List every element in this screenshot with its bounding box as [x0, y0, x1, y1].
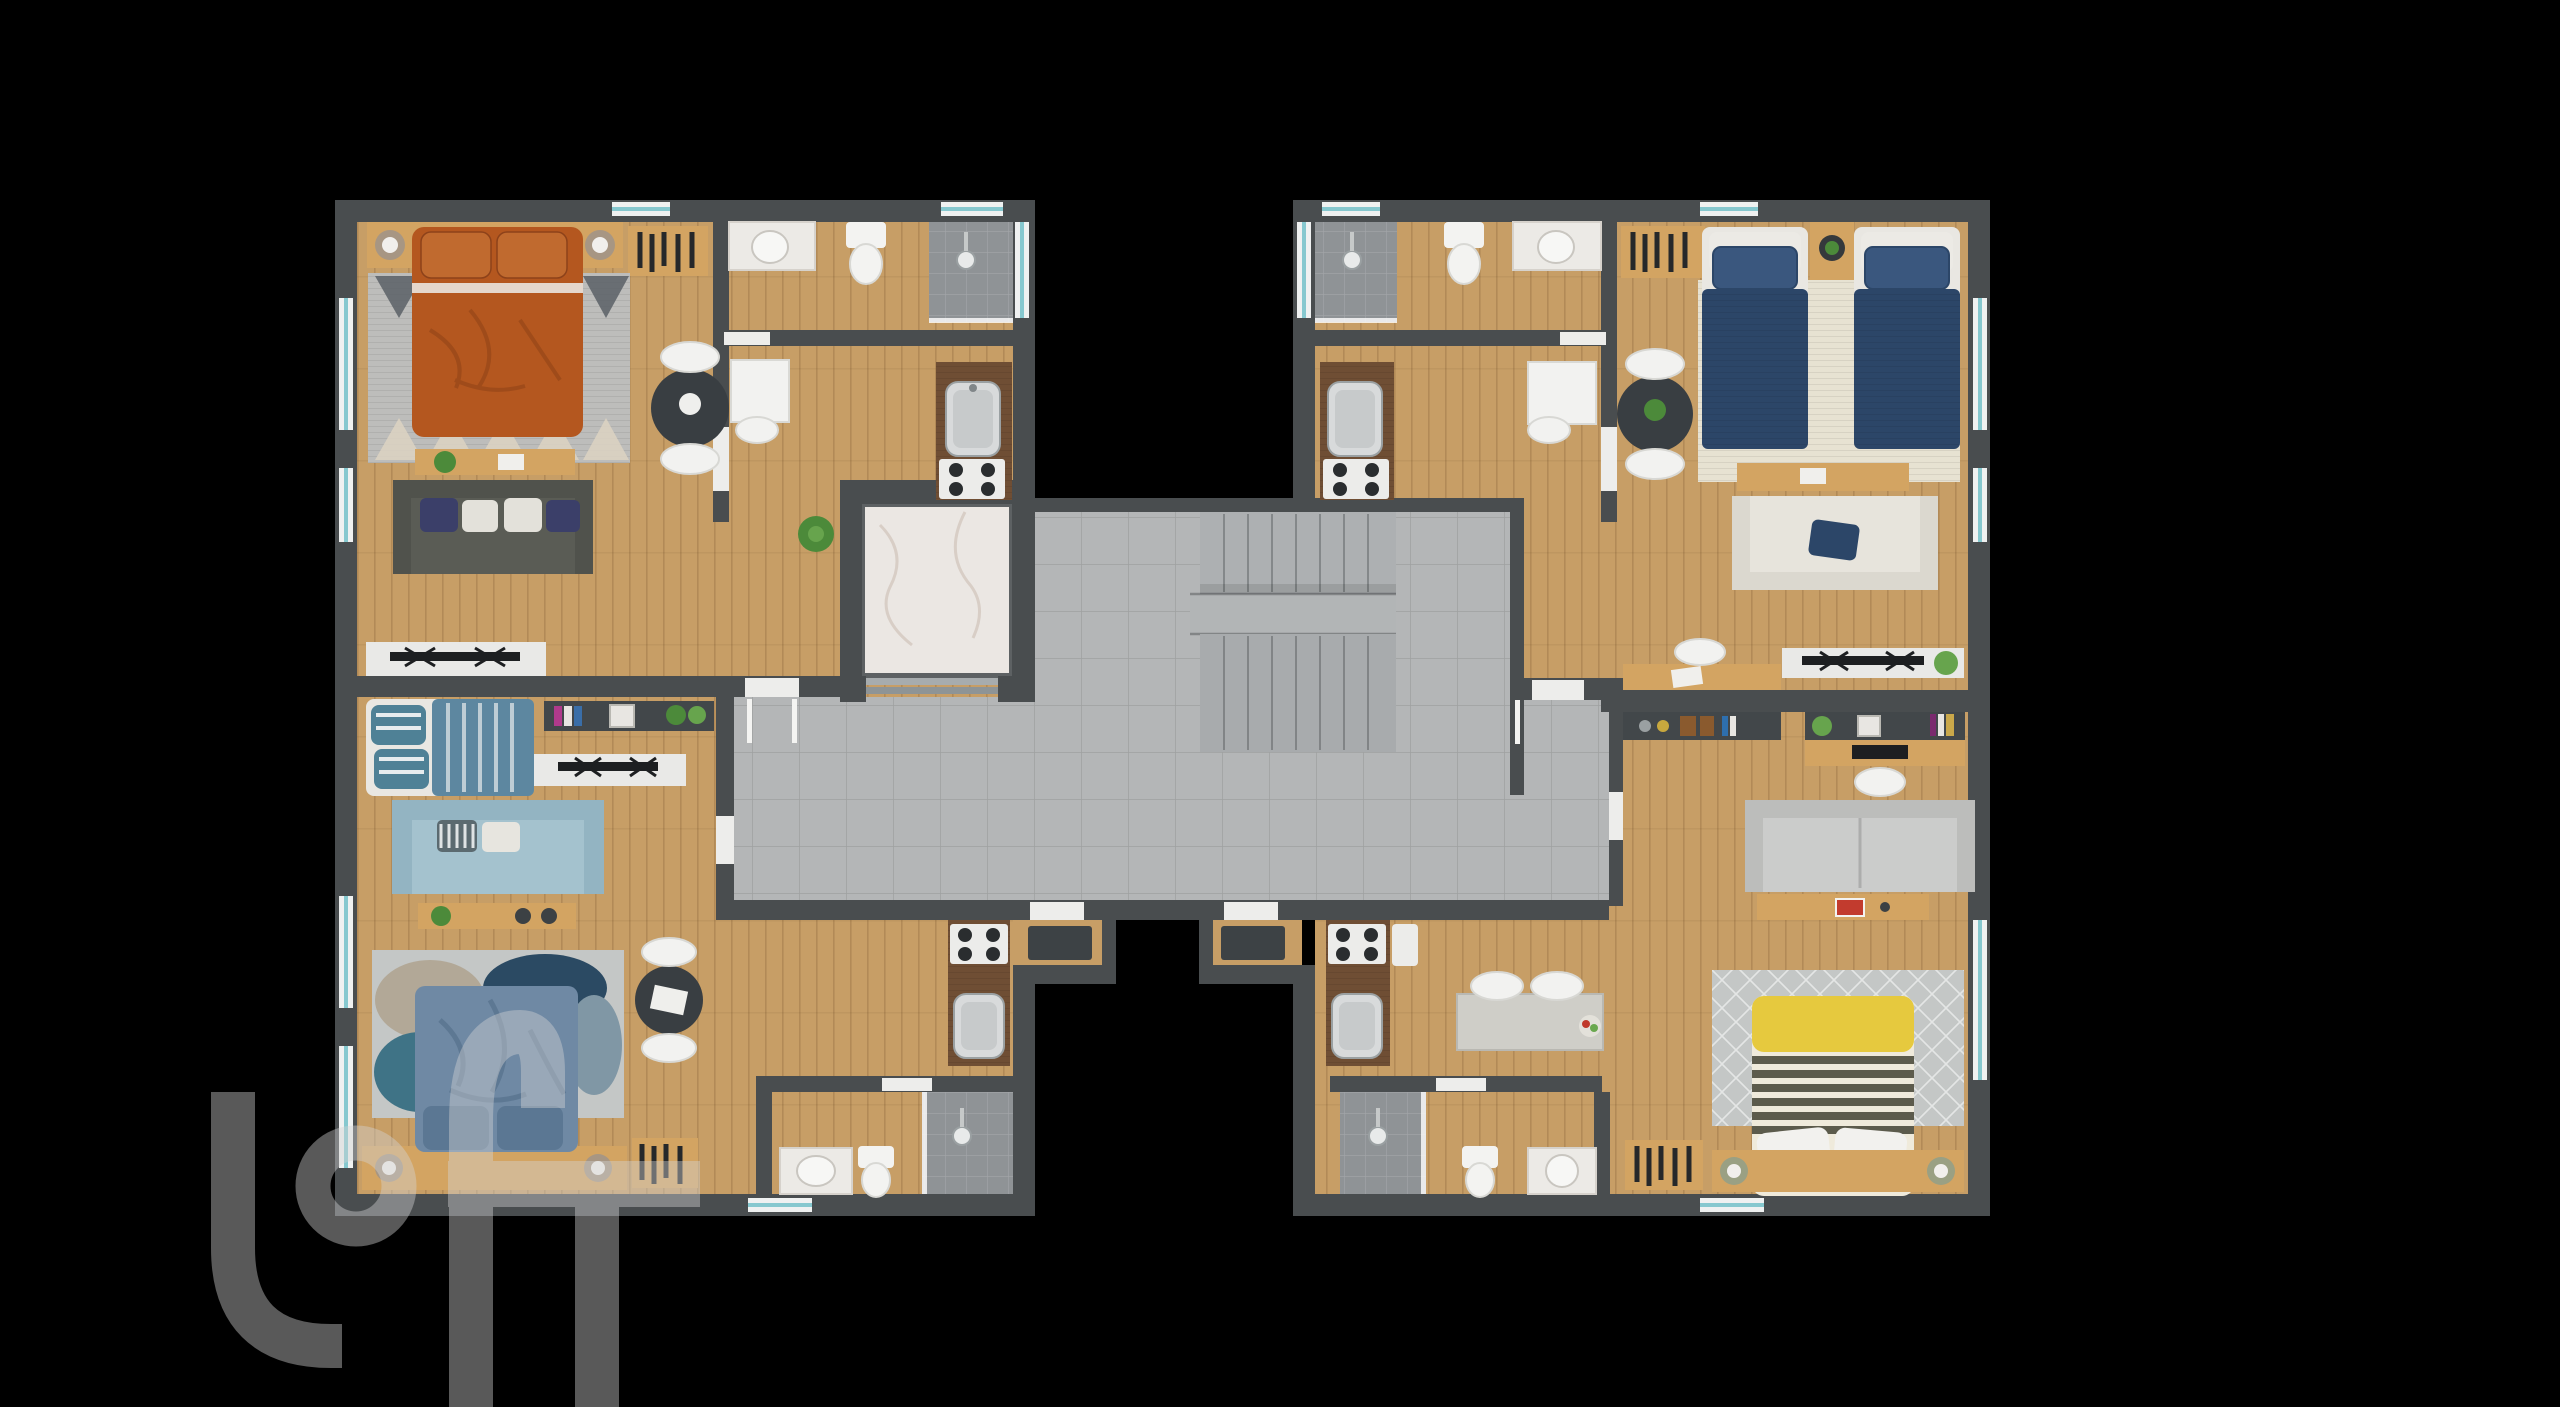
- window-glass: [1700, 207, 1758, 211]
- lt-bed-sheet: [412, 283, 583, 293]
- lt-burner: [981, 482, 995, 496]
- window-glass: [941, 207, 1003, 211]
- rb-shelf-box: [1680, 716, 1696, 736]
- rb-fruit-plate: [1579, 1015, 1601, 1037]
- door-leaf: [792, 699, 797, 743]
- rb-fruit: [1582, 1020, 1590, 1028]
- rt-dining-chair: [1626, 449, 1684, 479]
- elevator-wall-left: [840, 480, 862, 702]
- rb-fruit: [1590, 1024, 1598, 1032]
- lb-bath-wall-vertical: [756, 1092, 772, 1194]
- window-glass: [344, 298, 348, 430]
- lt-shower-glass: [929, 318, 1013, 323]
- vestibule-grout: [1524, 700, 1609, 795]
- lt-tv: [390, 652, 520, 661]
- rb-bed-stripe: [1752, 1098, 1914, 1106]
- elevator-door-sill: [866, 678, 998, 685]
- lb-sofa-arm: [392, 800, 412, 894]
- door-threshold: [724, 332, 770, 345]
- rt-shower-glass: [1315, 318, 1397, 323]
- rb-toilet-bowl: [1466, 1163, 1494, 1197]
- window-glass: [1978, 298, 1982, 430]
- rb-console-magazine: [1836, 899, 1864, 916]
- door-leaf: [747, 699, 752, 743]
- doormat-left: [1028, 926, 1092, 960]
- lt-sofa-arm: [393, 480, 411, 574]
- lt-bath-basin: [752, 231, 788, 263]
- lb-bath-basin: [797, 1156, 835, 1186]
- lb-burner: [958, 928, 972, 942]
- left-tower-wall-top: [335, 200, 1035, 222]
- rt-dining-chair: [1626, 349, 1684, 379]
- elevator-jamb-right: [998, 676, 1035, 702]
- lb-sofa-pillow-white: [482, 822, 520, 852]
- lt-stove: [939, 459, 1005, 499]
- rt-kitchen-sink-basin: [1335, 390, 1375, 448]
- rb-burner: [1364, 928, 1378, 942]
- rt-sofa-pillow: [1808, 519, 1861, 561]
- rt-stove: [1323, 459, 1389, 499]
- rb-kitchen-item: [1392, 924, 1418, 966]
- window-glass: [612, 207, 670, 211]
- rt-dining-plant: [1644, 399, 1666, 421]
- lt-sofa-pillow-white: [462, 500, 498, 532]
- lb-chair: [642, 938, 696, 966]
- door-threshold: [882, 1078, 932, 1091]
- rt-tv-plant: [1934, 651, 1958, 675]
- lt-burner: [949, 463, 963, 477]
- rb-shower-head: [1369, 1127, 1387, 1145]
- lb-shelf-plant: [688, 706, 706, 724]
- window-glass: [1302, 222, 1306, 318]
- lb-shelf-plant: [666, 705, 686, 725]
- lb-shelf-book: [554, 706, 562, 726]
- elevator-jamb-left: [840, 676, 866, 702]
- window-glass: [1322, 207, 1380, 211]
- rt-sofa-arm: [1732, 496, 1750, 590]
- lt-sofa-pillow-white: [504, 498, 542, 532]
- floorplan-svg: [0, 0, 2560, 1407]
- door-threshold: [745, 678, 799, 697]
- doormat-right: [1221, 926, 1285, 960]
- rb-shelf-item: [1657, 720, 1669, 732]
- lt-desk: [731, 360, 789, 422]
- rb-kitchen-sink-basin: [1339, 1002, 1375, 1050]
- rb-bed-stripe: [1752, 1070, 1914, 1078]
- rb-bed-stripe: [1752, 1056, 1914, 1064]
- door-threshold: [1436, 1078, 1486, 1091]
- stair-landing: [1190, 594, 1396, 634]
- lt-kitchen-sink-basin: [953, 390, 993, 448]
- lt-console-plant: [434, 451, 456, 473]
- rb-bed-stripe: [1752, 1084, 1914, 1092]
- lt-kitchen-faucet: [969, 384, 977, 392]
- rb-bath-basin: [1546, 1155, 1578, 1187]
- lb-burner: [986, 947, 1000, 961]
- rt-burner: [1333, 463, 1347, 477]
- rb-bed-stripe: [1752, 1112, 1914, 1120]
- floorplan-layers: [335, 200, 1990, 1216]
- window-glass: [344, 896, 348, 1008]
- rb-burner: [1336, 928, 1350, 942]
- rb-shelf-book: [1946, 714, 1954, 736]
- rb-sofa-arm: [1745, 800, 1763, 892]
- floorplan-image: [0, 0, 2560, 1407]
- stair-hall-wall-right: [1510, 498, 1524, 795]
- right-tower-wall-top: [1293, 200, 1990, 222]
- lb-toilet-bowl: [862, 1163, 890, 1197]
- lb-sofa-arm: [584, 800, 604, 894]
- lt-desk-chair: [736, 417, 778, 443]
- lt-toilet-bowl: [850, 244, 882, 284]
- right-tower-wall-inner-lower: [1293, 984, 1315, 1194]
- rb-shelf-book: [1722, 716, 1728, 736]
- lb-burner: [986, 928, 1000, 942]
- right-tower-wall-bottom: [1293, 1194, 1990, 1216]
- rt-burner: [1365, 482, 1379, 496]
- nook-right-wall-bottom: [1199, 965, 1315, 984]
- lt-bed-pillow: [421, 232, 491, 278]
- rt-twin-pillow-navy: [1865, 247, 1949, 289]
- stair-upper-flight: [1200, 512, 1396, 594]
- lb-chair: [642, 1034, 696, 1062]
- corridor-wall-bottom: [716, 900, 1609, 920]
- rb-shelf-item: [1639, 720, 1651, 732]
- corridor-grout: [734, 795, 1609, 906]
- lt-sofa-back: [393, 480, 593, 498]
- lb-stove: [950, 924, 1008, 964]
- door-threshold: [1609, 792, 1623, 840]
- rt-sofa-arm: [1920, 496, 1938, 590]
- nook-left-wall-bottom: [1013, 965, 1116, 984]
- door-threshold: [716, 816, 734, 864]
- lt-lamp-inner: [382, 237, 398, 253]
- lt-dining-plate: [679, 393, 701, 415]
- lb-console-plant: [431, 906, 451, 926]
- lb-pillow: [374, 749, 429, 789]
- door-leaf: [1515, 700, 1520, 744]
- lb-shower-glass: [922, 1092, 927, 1194]
- stair-shadow: [1200, 584, 1396, 594]
- rt-shower-head: [1343, 251, 1361, 269]
- rb-dining-chair: [1531, 972, 1583, 1000]
- rb-shelf-book: [1730, 716, 1736, 736]
- elevator-door-sill-2: [866, 687, 998, 694]
- door-threshold: [1532, 680, 1584, 700]
- door-threshold: [1030, 902, 1084, 920]
- rt-sofa-back: [1732, 572, 1938, 590]
- lb-shelf-frame: [610, 705, 634, 727]
- rb-headboard-shelf: [1712, 1150, 1964, 1192]
- window-glass: [1700, 1203, 1764, 1207]
- rt-desk-chair: [1528, 417, 1570, 443]
- lt-sofa-pillow-navy: [546, 500, 580, 532]
- door-threshold: [1560, 332, 1606, 345]
- rt-twin-pillow-navy: [1713, 247, 1797, 289]
- corridor-wall-left: [716, 697, 734, 906]
- rb-sofa-back: [1745, 800, 1975, 818]
- rt-work-chair: [1675, 639, 1725, 665]
- lt-bed-pillow: [497, 232, 567, 278]
- lt-dining-chair: [661, 342, 719, 372]
- lt-sofa-pillow-navy: [420, 498, 458, 532]
- door-threshold: [1224, 902, 1278, 920]
- rt-twin-bed-texture: [1854, 289, 1960, 449]
- window-glass: [1020, 222, 1024, 318]
- lb-sofa-back: [392, 800, 604, 820]
- rb-bed-yellow: [1752, 996, 1914, 1052]
- lb-shelf-book: [564, 706, 572, 726]
- lb-kitchen-sink-basin: [961, 1002, 997, 1050]
- stair-hall-wall-top: [1022, 498, 1524, 512]
- rb-sofa-arm: [1957, 800, 1975, 892]
- rb-burner: [1364, 947, 1378, 961]
- rt-burner: [1365, 463, 1379, 477]
- lt-burner: [949, 482, 963, 496]
- lb-bed-pillow: [497, 1106, 563, 1150]
- rb-shelf-book: [1930, 714, 1936, 736]
- window-glass: [748, 1203, 812, 1207]
- rt-bed-console-plant-leaf: [1825, 241, 1839, 255]
- window-glass: [1978, 468, 1982, 542]
- rb-work-chair: [1855, 768, 1905, 796]
- rb-shelf-frame: [1858, 716, 1880, 736]
- rb-burner: [1336, 947, 1350, 961]
- rt-shower-tile: [1315, 222, 1397, 322]
- rt-burner: [1333, 482, 1347, 496]
- lt-shower-tile: [929, 222, 1013, 322]
- lt-burner: [981, 463, 995, 477]
- rb-laptop: [1852, 745, 1908, 759]
- lt-plant-inner: [808, 526, 824, 542]
- lt-dining-chair: [661, 444, 719, 474]
- rt-bath-basin: [1538, 231, 1574, 263]
- window-glass: [1978, 920, 1982, 1080]
- rt-console-book: [1800, 468, 1826, 484]
- rb-shelf-box: [1700, 716, 1714, 736]
- lt-console-book: [498, 454, 524, 470]
- corridor-arm-grout: [734, 697, 1035, 795]
- rb-lamp-inner: [1727, 1164, 1741, 1178]
- window-glass: [344, 468, 348, 542]
- rb-console-deco: [1880, 902, 1890, 912]
- rt-toilet-bowl: [1448, 244, 1480, 284]
- left-divider-wall: [357, 676, 734, 697]
- right-divider-wall: [1601, 690, 1976, 712]
- rt-twin-bed-texture: [1702, 289, 1808, 449]
- door-threshold: [1601, 427, 1617, 491]
- lt-shower-head: [957, 251, 975, 269]
- rb-shower-glass: [1421, 1092, 1426, 1194]
- left-tower-wall-inner-lower: [1013, 984, 1035, 1194]
- stair-lower-flight: [1200, 634, 1396, 752]
- elevator-wall-right: [1012, 480, 1035, 702]
- lb-pillow: [371, 705, 426, 745]
- lb-shelf-book: [574, 706, 582, 726]
- rb-shelf-plant: [1812, 716, 1832, 736]
- lt-lamp-inner: [592, 237, 608, 253]
- rb-stove: [1328, 924, 1386, 964]
- rt-desk: [1528, 362, 1596, 424]
- lb-console-tray: [541, 908, 557, 924]
- rb-shelf-book: [1938, 714, 1944, 736]
- lb-shower-head: [953, 1127, 971, 1145]
- rb-lamp-inner: [1934, 1164, 1948, 1178]
- lb-burner: [958, 947, 972, 961]
- lb-console-tray: [515, 908, 531, 924]
- rb-dining-chair: [1471, 972, 1523, 1000]
